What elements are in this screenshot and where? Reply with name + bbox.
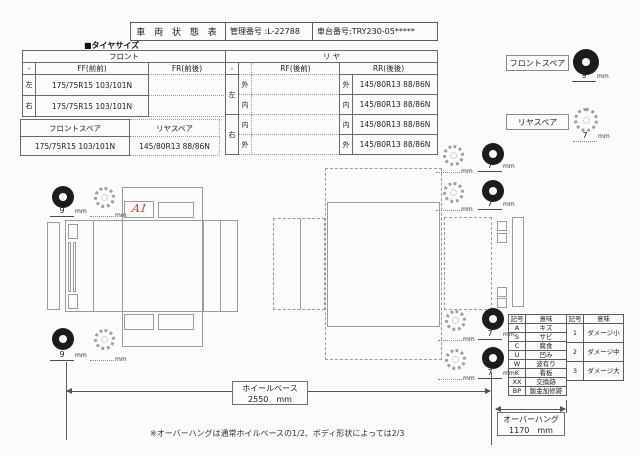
wheelbase-label: ホイールベース bbox=[233, 383, 307, 394]
wheelbase-value: 2550 bbox=[248, 395, 268, 404]
rear-row-pos: 内 bbox=[340, 115, 353, 135]
legend-code: W bbox=[509, 360, 526, 369]
legend-meaning: ダメージ大 bbox=[584, 362, 624, 381]
rear-row-side: 左 bbox=[226, 75, 239, 115]
front-right-inner-tire-icon bbox=[94, 329, 115, 350]
tread-depth: mm bbox=[438, 369, 475, 384]
body-divider-line bbox=[203, 221, 204, 311]
tread-depth: mm bbox=[438, 330, 475, 345]
rear-lamp-outline bbox=[497, 221, 507, 231]
rear-tire-table: リ ヤ - RF(後前) RR(後後) 左 外 外 145/80R13 88/8… bbox=[225, 50, 438, 155]
rear-row-pos: 外 bbox=[239, 135, 252, 155]
legend-code: BP bbox=[509, 387, 526, 396]
tread-depth: 9mm bbox=[50, 206, 87, 217]
rear-spare-tire-icon bbox=[574, 108, 598, 132]
wheelbase-box: ホイールベース 2550mm bbox=[232, 381, 308, 405]
tread-depth-unit: mm bbox=[461, 168, 473, 175]
rear-panel-outline bbox=[512, 217, 524, 307]
legend-meaning: 看板 bbox=[526, 369, 567, 378]
rear-col-rf: RF(後前) bbox=[252, 63, 340, 75]
windshield-strip bbox=[68, 242, 71, 292]
rear-lamp-outline bbox=[497, 287, 507, 297]
rear-row-pos: 内 bbox=[340, 95, 353, 115]
management-number-label: 管理番号 : bbox=[230, 27, 267, 36]
spare-tire-table: フロントスペア リヤスペア 175/75R15 103/101N 145/80R… bbox=[20, 119, 220, 156]
legend-meaning: キズ bbox=[526, 324, 567, 333]
legend-code: U bbox=[509, 351, 526, 360]
tread-depth-value: 7 bbox=[478, 161, 502, 172]
wheelbase-unit: mm bbox=[276, 395, 292, 404]
legend-code-header: 記号 bbox=[567, 315, 584, 324]
front-tire-table: フロント - FF(前前) FR(前後) 左 175/75R15 103/101… bbox=[22, 50, 226, 117]
front-spare-header: フロントスペア bbox=[21, 120, 130, 137]
legend-code: XX bbox=[509, 378, 526, 387]
front-left-tire-icon bbox=[52, 186, 74, 208]
rear-gate-outline bbox=[444, 217, 492, 310]
tread-depth-value bbox=[438, 330, 462, 341]
tread-depth-unit: mm bbox=[75, 208, 87, 215]
rear-inner-tire-icon bbox=[445, 310, 466, 331]
tread-depth-value: 7 bbox=[478, 199, 502, 210]
front-col-ff: FF(前前) bbox=[36, 63, 149, 75]
tire-size-value bbox=[252, 135, 340, 155]
legend-code: 1 bbox=[567, 324, 584, 343]
tread-depth-value bbox=[436, 162, 460, 173]
tread-depth-unit: mm bbox=[597, 73, 609, 80]
legend-meaning: 波有り bbox=[526, 360, 567, 369]
tread-depth: 7mm bbox=[478, 161, 515, 172]
document-header-table: 車 両 状 態 表 管理番号 :L-22788 車台番号:TRY230-05**… bbox=[130, 22, 438, 41]
bed-front-wall-line bbox=[300, 218, 301, 310]
legend-meaning: 鈑金加修跡 bbox=[526, 387, 567, 396]
tread-depth: 7mm bbox=[478, 199, 515, 210]
tire-size-value: 175/75R15 103/101N bbox=[36, 75, 149, 96]
tread-depth-value: 7 bbox=[573, 131, 597, 142]
legend-table-damage: 記号意味 Aキズ Sサビ C腐食 U凹み W波有り K看板 XX交換跡 BP鈑金… bbox=[508, 314, 567, 396]
tread-depth-unit: mm bbox=[503, 163, 515, 170]
rear-row-pos: 外 bbox=[239, 75, 252, 95]
tire-size-value: 145/80R13 88/86N bbox=[353, 75, 438, 95]
legend-meaning-header: 意味 bbox=[584, 315, 624, 324]
tire-size-value bbox=[252, 95, 340, 115]
rear-row-pos: 外 bbox=[340, 75, 353, 95]
cargo-panel-outline bbox=[158, 202, 194, 218]
legend-code: 2 bbox=[567, 343, 584, 362]
management-number-value: L-22788 bbox=[267, 27, 300, 36]
rear-spare-header: リヤスペア bbox=[130, 120, 220, 137]
cab-detail-outline bbox=[68, 224, 78, 239]
bed-front-wall-outline bbox=[273, 218, 325, 310]
legend-meaning: 凹み bbox=[526, 351, 567, 360]
cab-detail-outline bbox=[68, 294, 78, 309]
tire-size-value bbox=[149, 96, 226, 117]
legend-meaning: 交換跡 bbox=[526, 378, 567, 387]
windshield-strip bbox=[73, 242, 76, 292]
legend-code-header: 記号 bbox=[509, 315, 526, 324]
overhang-unit: mm bbox=[537, 426, 553, 435]
front-row-side: 左 bbox=[23, 75, 36, 96]
overhang-value: 1170 bbox=[509, 426, 529, 435]
front-col-fr: FR(前後) bbox=[149, 63, 226, 75]
overhang-label: オーバーハング bbox=[498, 414, 564, 425]
tread-depth: mm bbox=[436, 162, 473, 177]
tread-depth-unit: mm bbox=[461, 206, 473, 213]
legend-code: K bbox=[509, 369, 526, 378]
rear-spare-label: リヤスペア bbox=[506, 114, 569, 130]
rear-row-side: 右 bbox=[226, 115, 239, 155]
legend-table-severity: 記号意味 1ダメージ小 2ダメージ中 3ダメージ大 bbox=[566, 314, 624, 381]
rear-table-title: リ ヤ bbox=[226, 51, 438, 63]
tread-depth-value: 7 bbox=[478, 329, 502, 340]
tread-depth-unit: mm bbox=[503, 201, 515, 208]
front-row-side: 右 bbox=[23, 96, 36, 117]
body-divider-line bbox=[220, 221, 221, 311]
rear-corner-cell: - bbox=[226, 63, 239, 75]
overhang-right-line bbox=[566, 400, 567, 413]
cargo-panel-outline bbox=[158, 314, 194, 330]
legend-code: C bbox=[509, 342, 526, 351]
tire-size-value: 145/80R13 88/86N bbox=[353, 135, 438, 155]
damage-mark-a1: A1 bbox=[131, 202, 148, 215]
rear-lamp-outline bbox=[497, 298, 507, 308]
rear-outer-tire-icon bbox=[482, 347, 504, 369]
tread-depth-value: 9 bbox=[572, 71, 596, 82]
chassis-number-cell: 車台番号:TRY230-05***** bbox=[313, 23, 438, 41]
rear-row-pos: 内 bbox=[239, 95, 252, 115]
legend-meaning: ダメージ小 bbox=[584, 324, 624, 343]
tire-size-value: 145/80R13 88/86N bbox=[353, 115, 438, 135]
tire-size-value: 145/80R13 88/86N bbox=[130, 137, 220, 156]
rear-spare-depth: 7mm bbox=[573, 131, 610, 142]
rear-col-rr: RR(後後) bbox=[340, 63, 438, 75]
front-spare-label: フロントスペア bbox=[506, 55, 569, 71]
chassis-number-label: 車台番号: bbox=[317, 27, 352, 36]
rear-outer-tire-icon bbox=[482, 308, 504, 330]
legend-meaning: 腐食 bbox=[526, 342, 567, 351]
tire-size-value: 175/75R15 103/101N bbox=[21, 137, 130, 156]
rear-pos-header bbox=[239, 63, 252, 75]
chassis-number-value: TRY230-05***** bbox=[352, 27, 415, 36]
tread-depth-value: 9 bbox=[50, 206, 74, 217]
tire-size-value: 145/80R13 88/86N bbox=[353, 95, 438, 115]
front-bumper-outline bbox=[47, 222, 60, 310]
rear-inner-tire-icon bbox=[445, 349, 466, 370]
tread-depth-value bbox=[90, 206, 114, 217]
vehicle-condition-sheet: 車 両 状 態 表 管理番号 :L-22788 車台番号:TRY230-05**… bbox=[0, 0, 640, 456]
document-title: 車 両 状 態 表 bbox=[131, 23, 226, 41]
tread-depth-value: 7 bbox=[478, 368, 502, 379]
overhang-box: オーバーハング 1170mm bbox=[497, 412, 565, 436]
legend-meaning: ダメージ中 bbox=[584, 343, 624, 362]
tread-depth-unit: mm bbox=[75, 352, 87, 359]
tire-size-value bbox=[252, 75, 340, 95]
front-spare-depth: 9mm bbox=[572, 71, 609, 82]
tire-size-value: 175/75R15 103/101N bbox=[36, 96, 149, 117]
tread-depth-unit: mm bbox=[115, 356, 127, 363]
wheelbase-left-line bbox=[66, 362, 67, 440]
legend-code: 3 bbox=[567, 362, 584, 381]
tread-depth-unit: mm bbox=[598, 133, 610, 140]
tread-depth-value bbox=[438, 369, 462, 380]
tread-depth-unit: mm bbox=[463, 336, 475, 343]
bed-inner-outline bbox=[327, 202, 440, 327]
rear-lamp-outline bbox=[497, 233, 507, 243]
tread-depth-value bbox=[90, 350, 114, 361]
rear-row-pos: 外 bbox=[340, 135, 353, 155]
wheelbase-right-line bbox=[491, 372, 492, 445]
legend-meaning: サビ bbox=[526, 333, 567, 342]
tread-depth-value: 9 bbox=[50, 350, 74, 361]
legend-meaning-header: 意味 bbox=[526, 315, 567, 324]
front-right-tire-icon bbox=[52, 328, 74, 350]
rear-row-pos: 内 bbox=[239, 115, 252, 135]
tire-size-value bbox=[149, 75, 226, 96]
tire-size-value bbox=[252, 115, 340, 135]
cargo-panel-outline bbox=[124, 314, 154, 330]
legend-code: S bbox=[509, 333, 526, 342]
tread-depth: mm bbox=[90, 350, 127, 365]
tread-depth-value bbox=[436, 200, 460, 211]
front-table-title: フロント bbox=[23, 51, 226, 63]
front-left-inner-tire-icon bbox=[94, 187, 115, 208]
cab-divider-line bbox=[93, 221, 94, 311]
front-corner-cell: - bbox=[23, 63, 36, 75]
overhang-footnote: ※オーバーハングは通常ホイルベースの1/2、ボディ形状によっては2/3 bbox=[150, 428, 404, 439]
tread-depth: mm bbox=[436, 200, 473, 215]
tread-depth: 9mm bbox=[50, 350, 87, 361]
tread-depth-unit: mm bbox=[463, 375, 475, 382]
legend-code: A bbox=[509, 324, 526, 333]
management-number-cell: 管理番号 :L-22788 bbox=[226, 23, 313, 41]
